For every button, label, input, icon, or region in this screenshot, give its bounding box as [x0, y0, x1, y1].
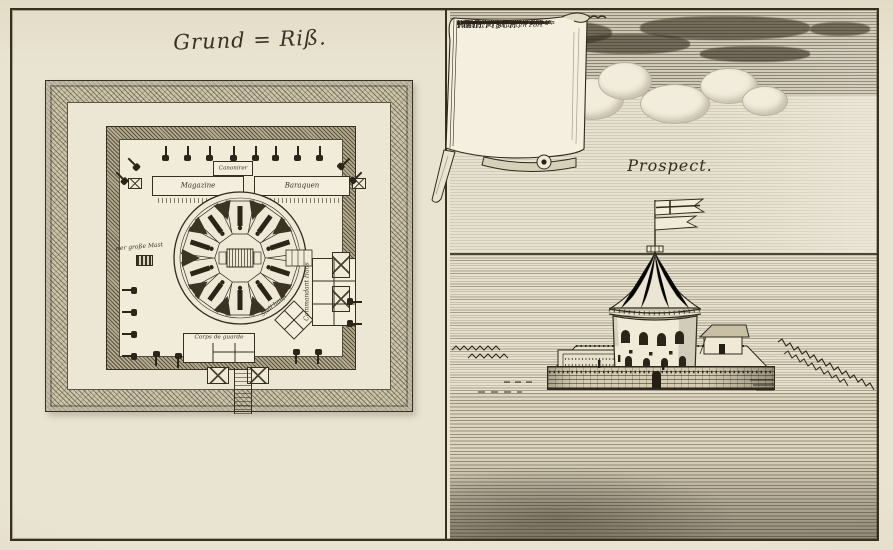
platform-mark: [207, 367, 229, 384]
cannon-icon: [206, 146, 214, 162]
figures: [598, 355, 665, 370]
foreground-waves: [452, 412, 818, 529]
cannon-icon: [122, 286, 138, 294]
commandant-partitions: [312, 258, 356, 326]
gate-bridge: [234, 368, 252, 414]
legend-scroll: [424, 8, 624, 218]
cannon-icon: [162, 146, 170, 162]
island-house: [700, 325, 749, 354]
cannon-icon: [174, 352, 182, 368]
cannon-icon: [272, 146, 280, 162]
building-label: Canonirer: [214, 165, 252, 171]
engraving-page: Canonirer Magazine Baraquen: [0, 0, 893, 550]
building-canonirer: Canonirer: [213, 161, 253, 176]
cannon-icon: [184, 146, 192, 162]
label-commandant: Commandant Haus: [304, 257, 311, 327]
cannon-icon: [292, 348, 300, 364]
cannon-icon: [314, 348, 322, 364]
plan-tower-stairwell: [219, 249, 261, 267]
cannon-icon: [230, 146, 238, 162]
corps-partitions: [183, 333, 255, 363]
legend-line: h. Die brücke und der Eingang.: [457, 20, 551, 27]
cannon-icon: [122, 352, 138, 360]
cannon-icon: [122, 330, 138, 338]
cannon-icon: [346, 320, 362, 328]
mast-foundation: [136, 255, 153, 266]
scroll-body: [446, 15, 587, 158]
scroll-tail: [432, 150, 455, 202]
island-gate: [652, 371, 661, 388]
cannon-icon: [316, 146, 324, 162]
cannon-icon: [152, 350, 160, 366]
scroll-roller: [482, 157, 576, 172]
plan-title: Grund = Riß.: [150, 25, 351, 56]
cannon-icon: [346, 298, 362, 306]
island-stairs: [750, 380, 774, 395]
cannon-icon: [122, 308, 138, 316]
cannon-icon: [294, 146, 302, 162]
cannon-icon: [252, 146, 260, 162]
